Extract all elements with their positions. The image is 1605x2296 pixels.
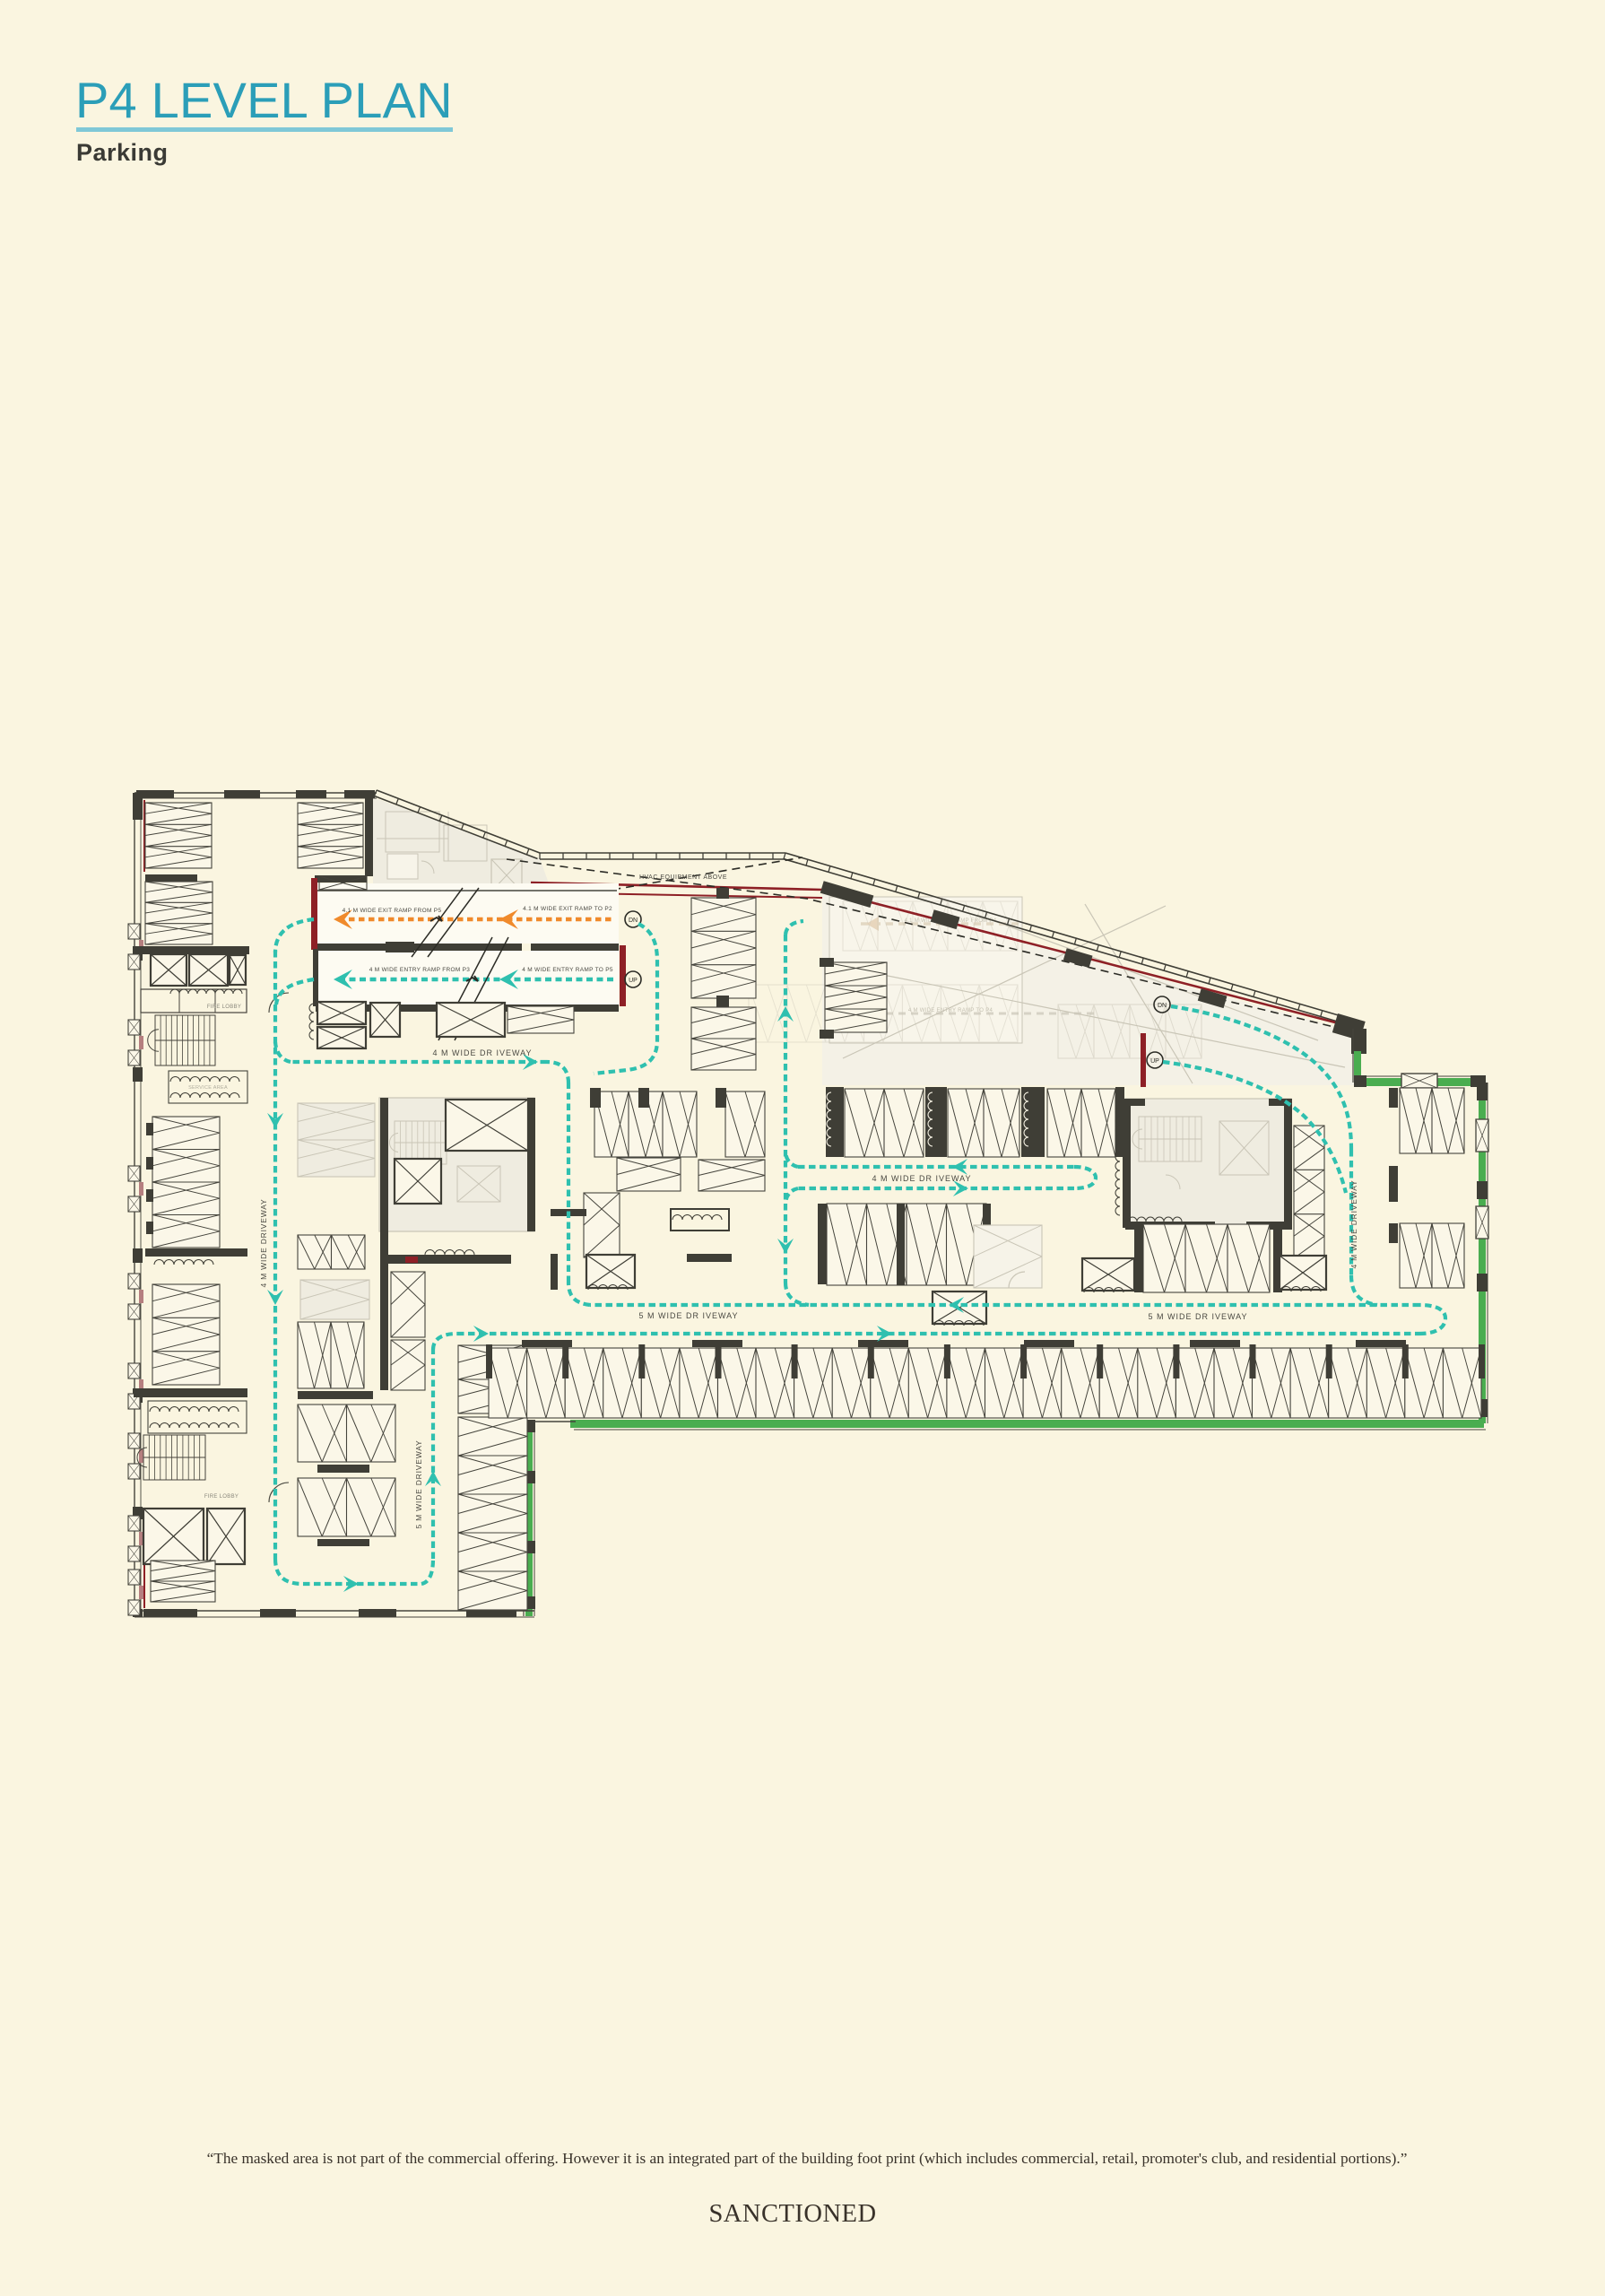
svg-text:Parking: Parking [76, 139, 169, 166]
svg-text:4 M WIDE DRIVEWAY: 4 M WIDE DRIVEWAY [259, 1198, 268, 1287]
svg-text:FIRE LOBBY: FIRE LOBBY [207, 1004, 241, 1010]
svg-text:5 M WIDE DR IVEWAY: 5 M WIDE DR IVEWAY [1148, 1312, 1247, 1321]
svg-text:SERVICE AREA: SERVICE AREA [188, 1085, 228, 1091]
svg-text:HVAC EQUIPMENT ABOVE: HVAC EQUIPMENT ABOVE [639, 874, 727, 881]
svg-text:4 M WIDE DR IVEWAY: 4 M WIDE DR IVEWAY [432, 1048, 532, 1057]
svg-text:4 M WIDE DRIVEWAY: 4 M WIDE DRIVEWAY [1349, 1179, 1358, 1268]
svg-text:4 M WIDE DR IVEWAY: 4 M WIDE DR IVEWAY [872, 1174, 971, 1183]
svg-text:4.1 M WIDE EXIT RAMP TO P2: 4.1 M WIDE EXIT RAMP TO P2 [523, 906, 612, 912]
svg-text:4 M WIDE ENTRY RAMP FROM P3: 4 M WIDE ENTRY RAMP FROM P3 [369, 967, 471, 973]
svg-text:5 M WIDE DRIVEWAY: 5 M WIDE DRIVEWAY [414, 1439, 423, 1528]
svg-text:UP: UP [629, 978, 638, 984]
svg-text:DN: DN [1158, 1003, 1167, 1009]
svg-text:P4 LEVEL PLAN: P4 LEVEL PLAN [75, 72, 453, 128]
svg-text:SANCTIONED: SANCTIONED [708, 2200, 876, 2228]
svg-text:4 M WIDE ENTRY RAMP TO P5: 4 M WIDE ENTRY RAMP TO P5 [522, 967, 613, 973]
svg-text:5 M WIDE DR IVEWAY: 5 M WIDE DR IVEWAY [638, 1311, 738, 1320]
svg-text:FIRE LOBBY: FIRE LOBBY [204, 1494, 239, 1500]
svg-text:UP: UP [1150, 1058, 1159, 1065]
svg-text:4.1 M WIDE EXIT RAMP FROM P5: 4.1 M WIDE EXIT RAMP FROM P5 [343, 908, 442, 914]
svg-text:“The masked area is not part o: “The masked area is not part of the comm… [207, 2150, 1408, 2167]
svg-text:DN: DN [629, 918, 638, 924]
